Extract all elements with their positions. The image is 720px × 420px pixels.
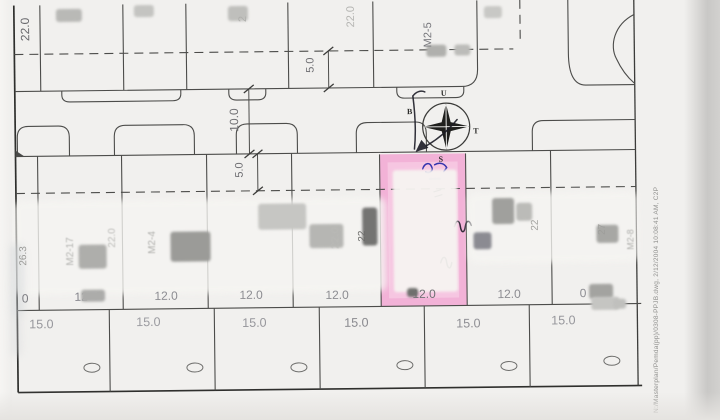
lot-width-label: 15.0 bbox=[545, 313, 581, 327]
lot-depth-label: 27 bbox=[597, 217, 608, 241]
compass-south-label: S bbox=[439, 155, 444, 164]
block-code-label: M2-4 bbox=[147, 225, 158, 259]
censor-blur-patch bbox=[56, 9, 82, 22]
plot-stamp-text: N:/Masterplan/Pemda(pp)/0308-PPJB.dwg, 2… bbox=[653, 143, 663, 413]
lot-width-label: 15.0 bbox=[23, 317, 59, 331]
lot-width-label: 15.0 bbox=[450, 316, 486, 330]
lot-width-label: 12.0 bbox=[235, 288, 267, 302]
block-code-label: 2 bbox=[237, 9, 249, 29]
block-code-label: M2-5 bbox=[422, 13, 434, 57]
curb-bulb bbox=[613, 15, 635, 84]
driveway-apron bbox=[62, 90, 181, 102]
scan-bottom-shadow bbox=[0, 392, 720, 420]
driveway-apron bbox=[532, 120, 635, 151]
lot-width-label: 0 bbox=[17, 291, 33, 305]
lot-depth-label: 22 bbox=[530, 213, 541, 237]
lot-width-label: 15.0 bbox=[338, 315, 374, 329]
censor-blur-patch bbox=[473, 232, 491, 249]
driveway-apron bbox=[114, 125, 194, 156]
censor-blur-patch bbox=[81, 290, 105, 302]
site-plan: 22.0 22.0 M2-5 2 5.0 10.0 5.0 22.0 22.0 … bbox=[8, 0, 648, 398]
lot-depth-label: 22.0 bbox=[107, 220, 118, 256]
lot-width-label: 12.0 bbox=[321, 288, 353, 302]
corner-wedge bbox=[15, 150, 24, 156]
censor-blur-patch bbox=[134, 5, 154, 17]
compass-north-label: U bbox=[441, 89, 447, 98]
scan-right-shadow bbox=[684, 0, 720, 420]
censor-blur-patch bbox=[258, 203, 306, 230]
dimension-ticks bbox=[243, 47, 335, 195]
driveway-apron bbox=[17, 126, 69, 157]
lot-width-label: 15.0 bbox=[130, 315, 166, 329]
censor-blur-patch bbox=[407, 288, 418, 297]
lot-depth-label: 22.0 bbox=[345, 0, 357, 37]
lot-width-label: 12.0 bbox=[493, 287, 525, 301]
row12-top-line bbox=[16, 150, 636, 157]
block-code-label: M2-8 bbox=[625, 220, 635, 260]
censor-blur-patch bbox=[613, 299, 626, 309]
lot-width-label: 12.0 bbox=[150, 289, 182, 303]
top-row-dividers bbox=[40, 1, 374, 91]
driveway-apron bbox=[236, 123, 297, 154]
road-width-dimension: 10.0 bbox=[227, 100, 241, 140]
censor-blur-patch bbox=[454, 44, 470, 55]
censor-blur-patch bbox=[484, 6, 502, 18]
compass-west-label: B bbox=[407, 107, 412, 116]
censor-blur-patch bbox=[393, 170, 458, 293]
dimension-lines bbox=[248, 51, 330, 191]
lot-depth-label: 26.3 bbox=[18, 239, 29, 273]
lot-depth-label: 22.0 bbox=[329, 218, 341, 258]
lot-depth-label: 22.0 bbox=[18, 9, 32, 49]
setback-dimension: 5.0 bbox=[233, 153, 245, 187]
censor-blur-patch bbox=[79, 245, 107, 269]
lot-width-label: 15.0 bbox=[236, 316, 272, 330]
censor-blur-patch bbox=[492, 198, 514, 224]
scan-smudge bbox=[11, 310, 22, 356]
septic-tank-symbols bbox=[84, 356, 620, 375]
lot-depth-label: 22 bbox=[357, 224, 368, 248]
block-code-label: M2-17 bbox=[65, 233, 76, 269]
setback-dimension: 5.0 bbox=[304, 48, 316, 82]
censor-blur-patch bbox=[170, 231, 210, 261]
driveway-apron bbox=[397, 86, 464, 98]
row15-top-line bbox=[17, 303, 641, 310]
compass-east-label: T bbox=[473, 126, 478, 135]
scanned-site-plan-page: { "plan": { "dimensions": { "top_left_de… bbox=[0, 0, 720, 420]
